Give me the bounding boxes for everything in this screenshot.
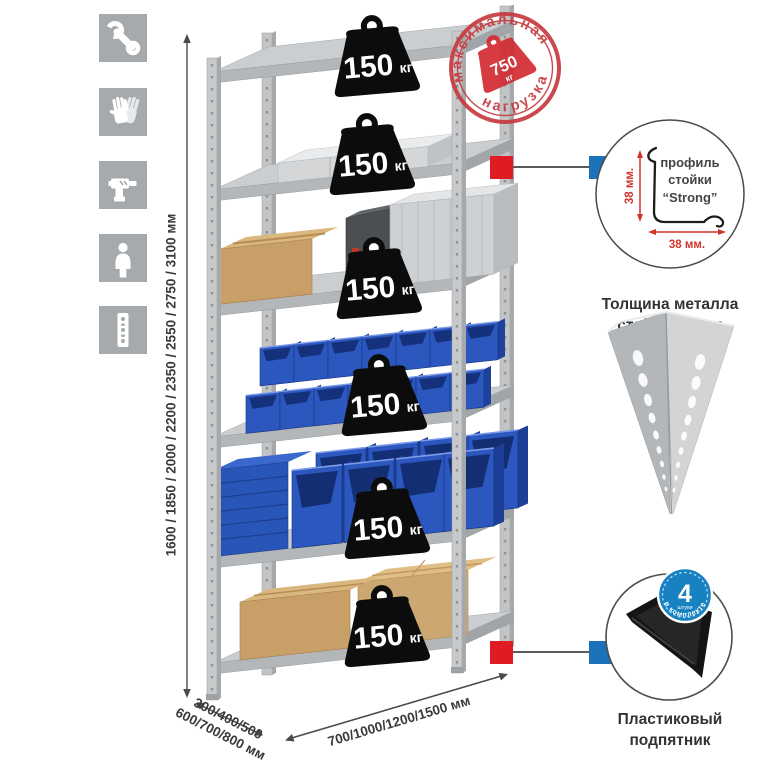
foot-caption-line-2: подпятник [568, 731, 765, 752]
load-unit: кг [409, 521, 423, 538]
load-value: 150 [337, 146, 390, 183]
foot-caption-line-1: Пластиковый [568, 710, 765, 731]
load-badge-shelf-5: 150 кг [325, 474, 445, 562]
front-left-post [206, 56, 221, 700]
load-value: 150 [342, 48, 395, 85]
wrench-icon [99, 14, 147, 62]
load-badge-shelf-4: 150 кг [322, 351, 442, 439]
load-unit: кг [406, 398, 420, 415]
load-badge-shelf-1: 150 кг [315, 12, 435, 100]
load-badge-shelf-6: 150 кг [325, 582, 445, 670]
gloves-icon-glyph [99, 88, 147, 136]
connector-line-top [500, 166, 592, 168]
gloves-icon [99, 88, 147, 136]
load-value: 150 [349, 387, 402, 424]
rack-post-icon-glyph [99, 306, 147, 354]
load-unit: кг [394, 157, 408, 174]
post-profile-detail: 38 мм. 38 мм. профиль стойки “Strong” [594, 118, 746, 270]
profile-label-2: стойки [668, 172, 712, 187]
load-value: 150 [344, 270, 397, 307]
person-icon [99, 234, 147, 282]
wrench-icon-glyph [99, 14, 147, 62]
width-dimension-line [275, 665, 520, 750]
profile-horizontal-dim-label: 38 мм. [669, 239, 705, 251]
load-unit: кг [409, 629, 423, 646]
load-unit: кг [401, 281, 415, 298]
load-unit: кг [399, 59, 413, 76]
angle-post-picture [596, 302, 746, 530]
foot-caption: Пластиковый подпятник [568, 710, 765, 752]
product-diagram: 1600 / 1850 / 2000 / 2200 / 2350 / 2550 … [0, 0, 765, 765]
load-badge-shelf-2: 150 кг [310, 110, 430, 198]
kit-quantity-badge: 4 штуки в комплекте [656, 566, 714, 624]
post-marker-bottom [490, 641, 513, 664]
profile-label-1: профиль [660, 155, 719, 170]
post-marker-top [490, 156, 513, 179]
profile-label-3: “Strong” [663, 190, 718, 205]
badge-number: 4 [678, 580, 692, 608]
load-value: 150 [352, 618, 405, 655]
max-load-stamp: максимальная нагрузка 750 кг [447, 10, 563, 126]
load-badge-shelf-3: 150 кг [317, 234, 437, 322]
rack-post-icon [99, 306, 147, 354]
connector-line-bottom [500, 651, 592, 653]
profile-vertical-dim-label: 38 мм. [624, 168, 636, 204]
load-value: 150 [352, 510, 405, 547]
person-icon-glyph [99, 234, 147, 282]
drill-icon [99, 161, 147, 209]
drill-icon-glyph [99, 161, 147, 209]
